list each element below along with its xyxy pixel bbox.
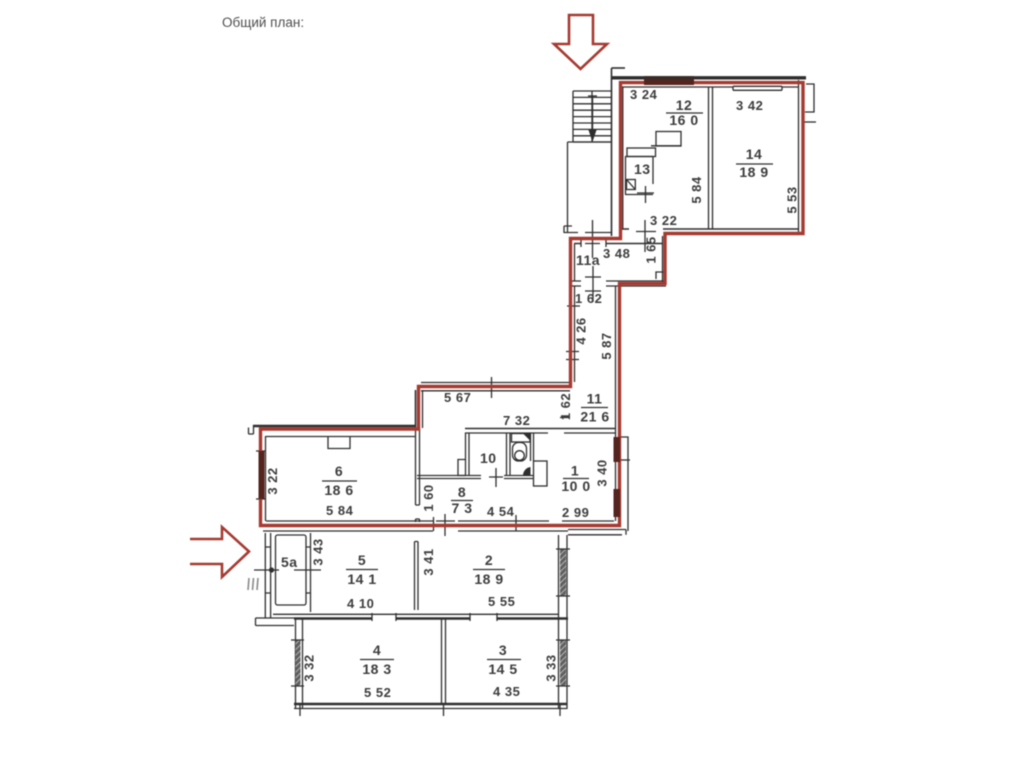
svg-text:4 54: 4 54: [487, 504, 515, 519]
svg-text:3 22: 3 22: [265, 467, 280, 494]
svg-text:5 55: 5 55: [488, 594, 515, 609]
svg-text:7 3: 7 3: [452, 500, 473, 516]
svg-text:5 52: 5 52: [364, 685, 391, 700]
svg-text:3 24: 3 24: [630, 87, 658, 102]
svg-text:11: 11: [587, 391, 603, 407]
svg-text:18 9: 18 9: [474, 571, 503, 587]
svg-text:1: 1: [571, 463, 579, 479]
svg-text:3 22: 3 22: [650, 213, 677, 228]
svg-text:10 0: 10 0: [561, 478, 590, 494]
svg-text:6: 6: [335, 463, 343, 479]
svg-text:3 41: 3 41: [421, 548, 436, 575]
svg-text:5a: 5a: [281, 554, 298, 570]
svg-text:3 32: 3 32: [302, 654, 317, 681]
svg-text:18 3: 18 3: [362, 661, 391, 677]
svg-text:1 62: 1 62: [558, 393, 573, 420]
svg-text:5: 5: [358, 552, 366, 568]
svg-text:1 60: 1 60: [421, 484, 436, 511]
svg-text:13: 13: [634, 161, 651, 177]
svg-text:4 10: 4 10: [347, 596, 374, 611]
svg-text:1 62: 1 62: [575, 291, 602, 306]
svg-text:3 42: 3 42: [736, 98, 763, 113]
svg-text:5 67: 5 67: [444, 390, 471, 405]
svg-text:3 43: 3 43: [311, 538, 326, 565]
svg-text:12: 12: [676, 97, 693, 113]
svg-text:18 6: 18 6: [324, 482, 353, 498]
svg-text:8: 8: [458, 484, 466, 500]
svg-text:14 5: 14 5: [488, 661, 517, 677]
svg-text:3: 3: [499, 642, 507, 658]
svg-text:3 40: 3 40: [595, 459, 610, 486]
svg-text:5 84: 5 84: [326, 503, 354, 518]
svg-text:5 53: 5 53: [785, 186, 800, 213]
svg-text:14 1: 14 1: [347, 571, 376, 587]
svg-text:10: 10: [480, 450, 497, 466]
svg-text:Общий план:: Общий план:: [222, 15, 304, 30]
svg-text:4 35: 4 35: [493, 684, 520, 699]
svg-text:5 87: 5 87: [599, 332, 614, 359]
svg-text:14: 14: [746, 146, 763, 162]
svg-text:1 65: 1 65: [644, 236, 659, 263]
svg-text:2: 2: [485, 552, 493, 568]
svg-text:4 26: 4 26: [574, 317, 589, 344]
svg-text:16 0: 16 0: [669, 112, 698, 128]
svg-text:5 84: 5 84: [689, 176, 704, 204]
svg-text:7 32: 7 32: [503, 413, 530, 428]
svg-text:3 33: 3 33: [544, 654, 559, 681]
svg-text:3 48: 3 48: [603, 246, 630, 261]
svg-text:4: 4: [373, 642, 381, 658]
svg-text:18 9: 18 9: [739, 164, 768, 180]
svg-text:21 6: 21 6: [580, 409, 609, 425]
svg-text:11a: 11a: [576, 252, 600, 268]
svg-text:2 99: 2 99: [562, 505, 589, 520]
